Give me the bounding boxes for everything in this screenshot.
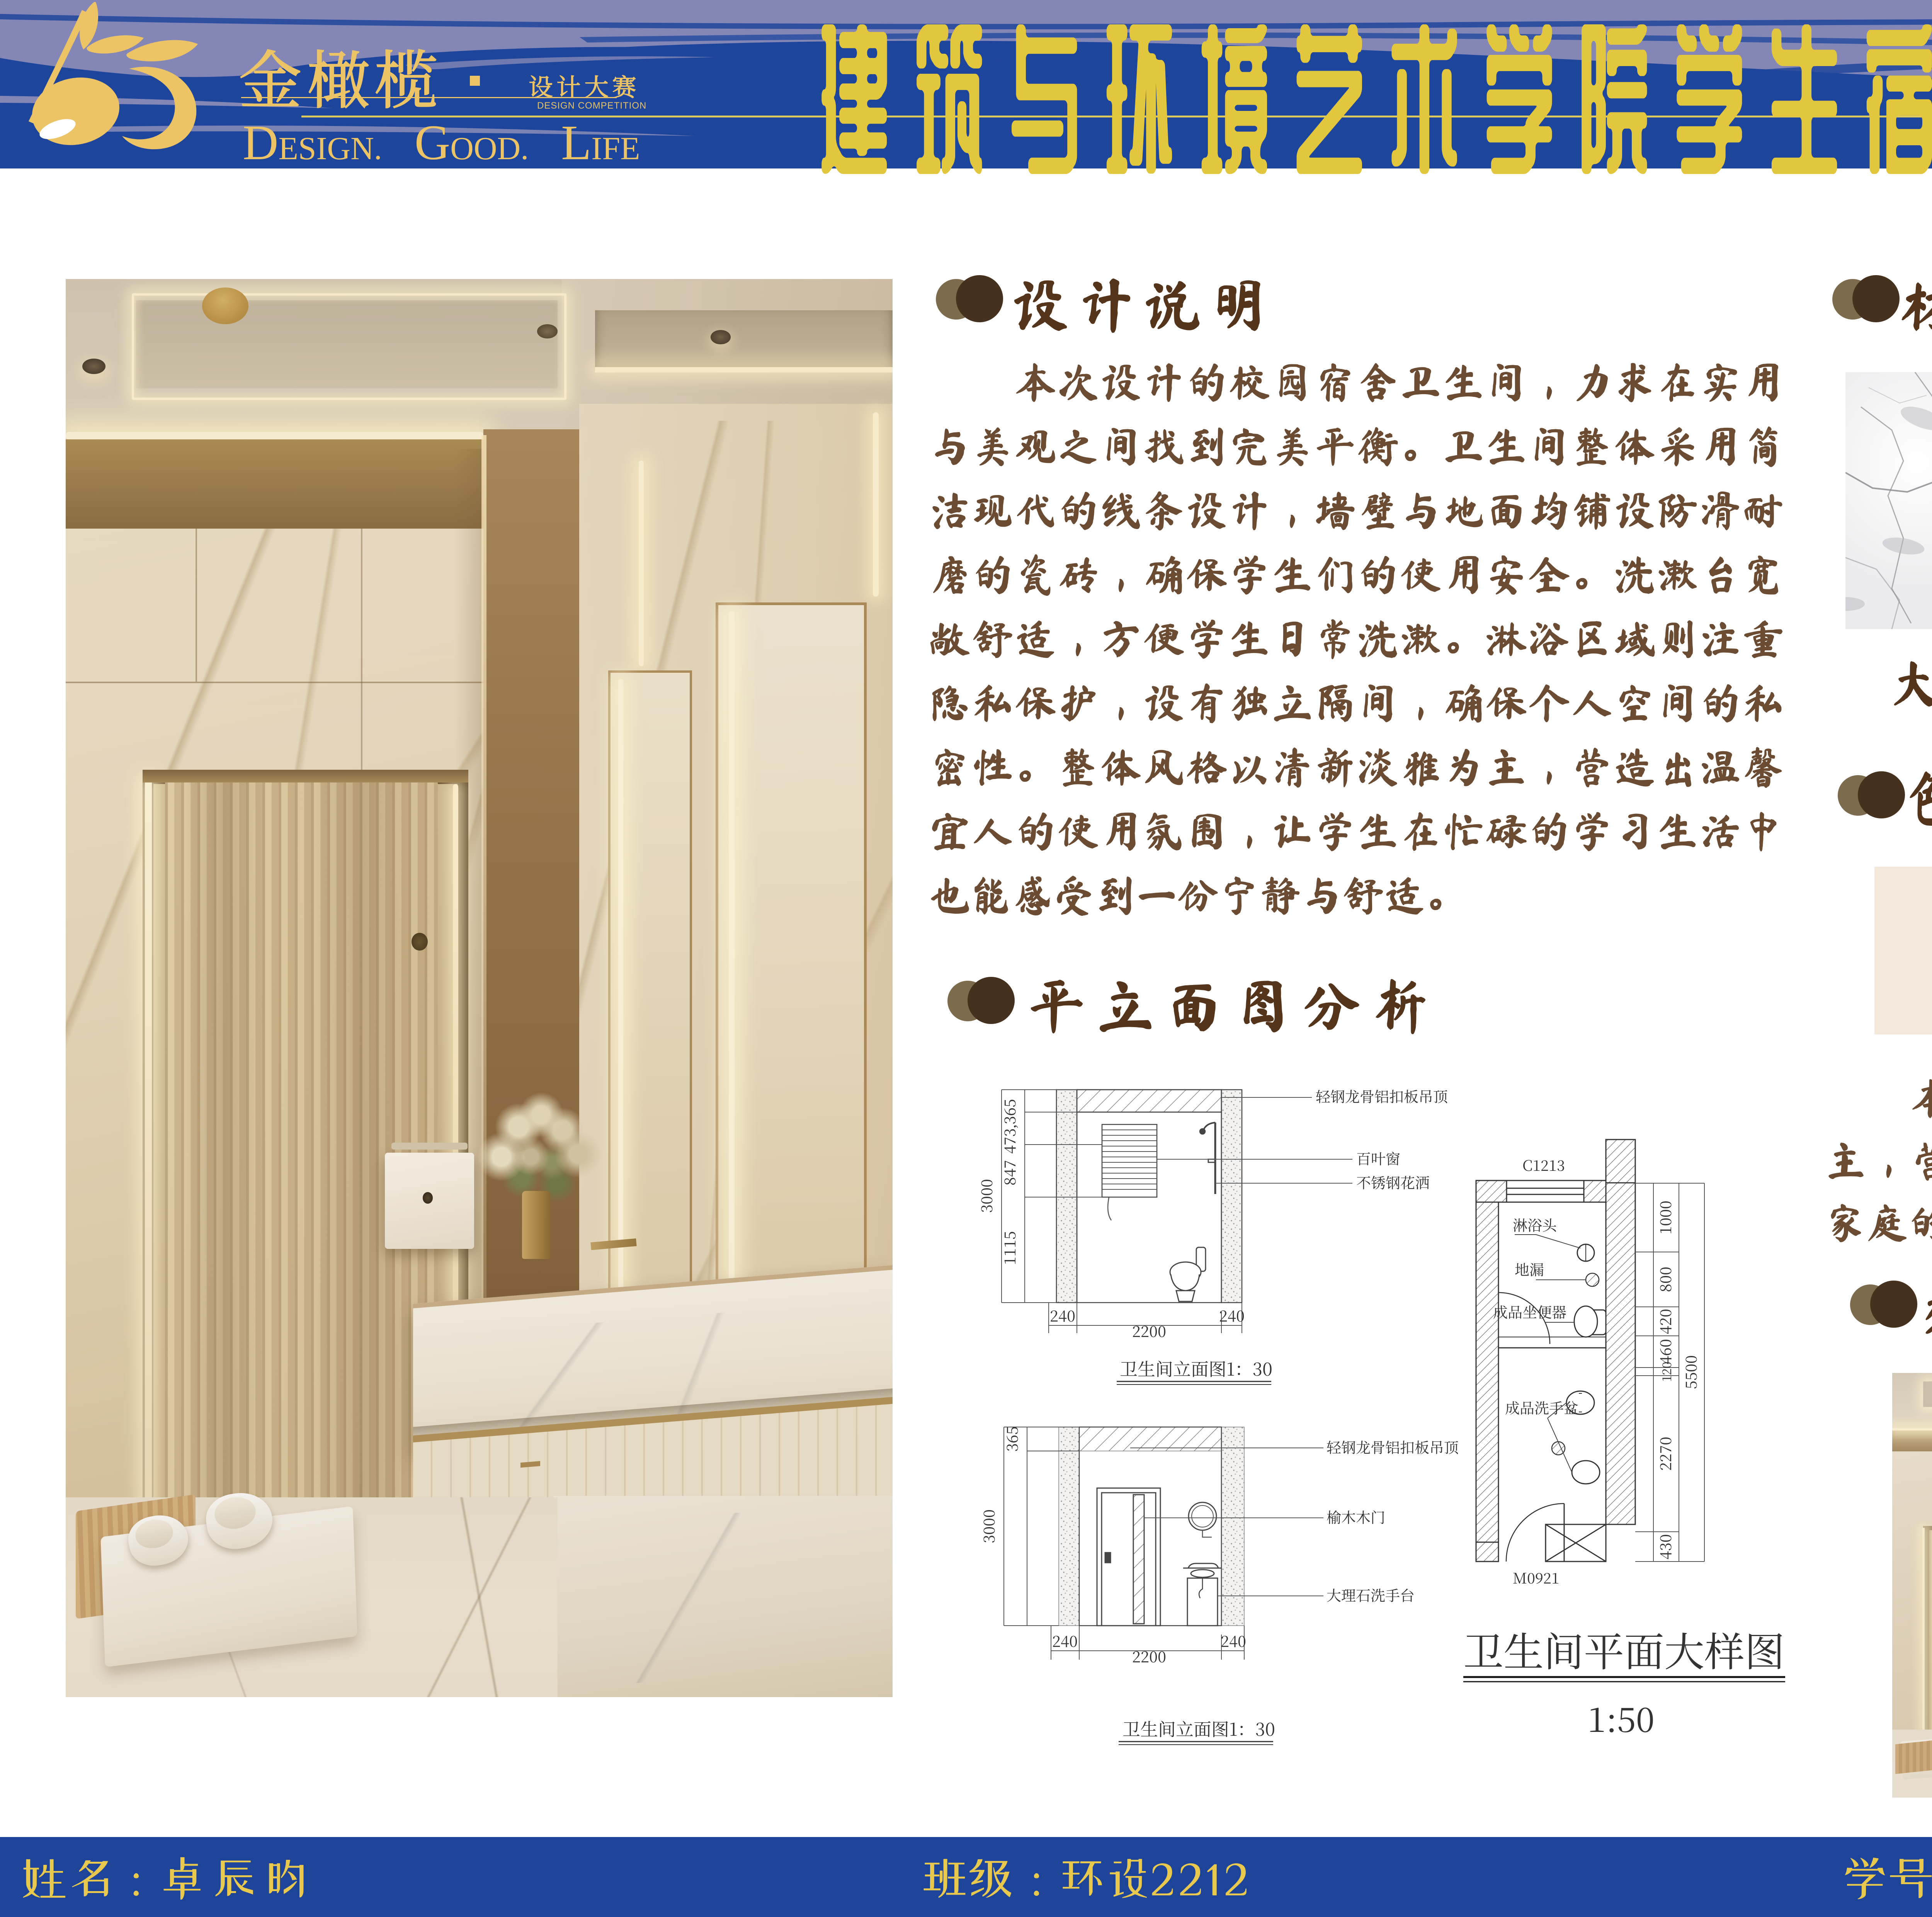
svg-text:2200: 2200 xyxy=(1132,1645,1166,1667)
svg-text:百叶窗: 百叶窗 xyxy=(1356,1147,1400,1169)
svg-text:成品坐便器: 成品坐便器 xyxy=(1493,1301,1566,1322)
svg-text:轻钢龙骨铝扣板吊顶: 轻钢龙骨铝扣板吊顶 xyxy=(1327,1436,1459,1457)
svg-text:1000: 1000 xyxy=(1654,1201,1676,1235)
svg-text:成品洗手盆: 成品洗手盆 xyxy=(1505,1397,1578,1418)
svg-text:3000: 3000 xyxy=(977,1509,999,1543)
svg-text:5500: 5500 xyxy=(1679,1355,1701,1389)
svg-text:1115: 1115 xyxy=(998,1231,1020,1265)
svg-text:淋浴头: 淋浴头 xyxy=(1513,1214,1557,1235)
svg-text:卫生间平面大样图: 卫生间平面大样图 xyxy=(1463,1620,1785,1678)
svg-text:240: 240 xyxy=(1219,1304,1245,1326)
svg-text:847: 847 xyxy=(998,1160,1020,1186)
svg-text:365: 365 xyxy=(1000,1426,1022,1452)
svg-text:榆木木门: 榆木木门 xyxy=(1327,1506,1385,1527)
svg-text:473,365: 473,365 xyxy=(998,1099,1020,1154)
svg-text:大理石洗手台: 大理石洗手台 xyxy=(1327,1584,1415,1605)
svg-text:430: 430 xyxy=(1654,1534,1676,1560)
svg-text:240: 240 xyxy=(1221,1630,1246,1652)
svg-text:800: 800 xyxy=(1654,1267,1676,1292)
svg-text:卫生间立面图1：30: 卫生间立面图1：30 xyxy=(1122,1716,1275,1741)
svg-text:240: 240 xyxy=(1050,1304,1075,1326)
svg-text:420: 420 xyxy=(1654,1309,1676,1334)
svg-text:3000: 3000 xyxy=(975,1179,997,1213)
svg-text:460: 460 xyxy=(1654,1339,1676,1364)
svg-text:240: 240 xyxy=(1052,1630,1078,1652)
svg-text:卫生间立面图1：30: 卫生间立面图1：30 xyxy=(1120,1356,1272,1381)
svg-text:2200: 2200 xyxy=(1132,1320,1166,1342)
svg-text:120: 120 xyxy=(1657,1362,1675,1382)
svg-text:C1213: C1213 xyxy=(1522,1154,1565,1175)
svg-text:1:50: 1:50 xyxy=(1587,1693,1655,1742)
svg-text:不锈钢花洒: 不锈钢花洒 xyxy=(1356,1171,1430,1192)
svg-text:M0921: M0921 xyxy=(1513,1567,1560,1588)
svg-text:2270: 2270 xyxy=(1654,1437,1676,1471)
svg-text:地漏: 地漏 xyxy=(1515,1258,1544,1279)
svg-text:轻钢龙骨铝扣板吊顶: 轻钢龙骨铝扣板吊顶 xyxy=(1316,1085,1448,1106)
